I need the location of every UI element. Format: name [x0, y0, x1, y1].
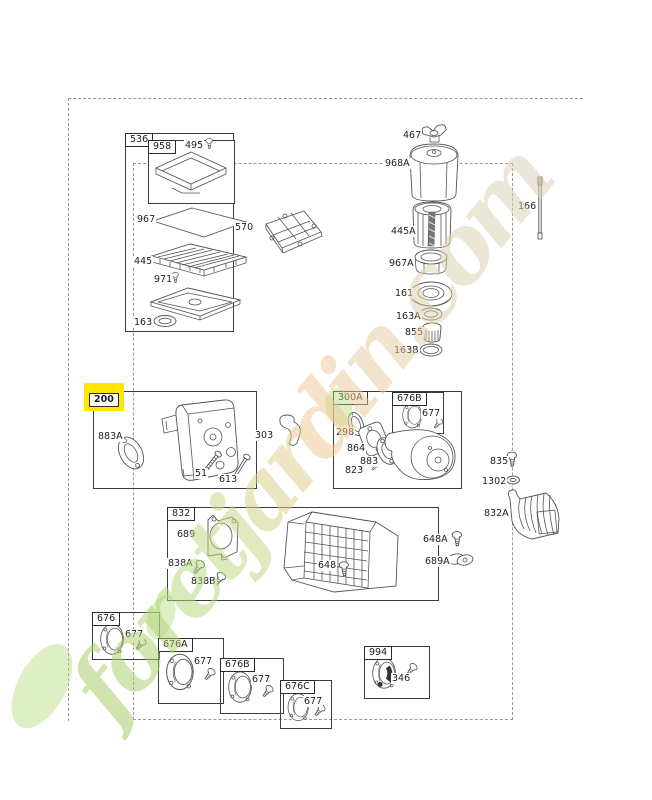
ref-648[interactable]: 648 [317, 560, 337, 571]
muffler-guard-grid-drawing [248, 508, 402, 596]
ref-883A[interactable]: 883A [97, 431, 124, 442]
ref-832[interactable]: 832 [167, 507, 195, 521]
screw-648A-icon [451, 530, 465, 549]
ref-838B[interactable]: 838B [190, 576, 217, 587]
ref-967A[interactable]: 967A [388, 258, 415, 269]
ref-864[interactable]: 864 [346, 443, 366, 454]
ref-648A[interactable]: 648A [422, 534, 449, 545]
outer-dash-left-line [68, 98, 69, 721]
ref-676A[interactable]: 676A [158, 638, 193, 652]
ref-823[interactable]: 823 [344, 465, 364, 476]
ref-689[interactable]: 689 [176, 529, 196, 540]
screw-677-icon-2 [204, 668, 216, 683]
ref-51[interactable]: 51 [194, 468, 208, 479]
ref-445[interactable]: 445 [133, 256, 153, 267]
ref-677-1[interactable]: 677 [124, 629, 144, 640]
plate-676-drawing [98, 622, 128, 658]
ref-467[interactable]: 467 [402, 130, 422, 141]
ref-161[interactable]: 161 [394, 288, 414, 299]
ref-166[interactable]: 166 [517, 201, 537, 212]
ref-298[interactable]: 298 [335, 427, 355, 438]
ref-495[interactable]: 495 [184, 140, 204, 151]
ref-677-2[interactable]: 677 [193, 656, 213, 667]
ref-689A[interactable]: 689A [424, 556, 451, 567]
highlighted-ref-200[interactable]: 200 [84, 383, 124, 411]
screw-677-icon-3 [262, 685, 274, 700]
ref-445A[interactable]: 445A [390, 226, 417, 237]
parts-diagram-canvas: 536 958 495 967 445 971 163 570 467 968A… [0, 0, 652, 800]
ref-200[interactable]: 200 [89, 393, 119, 407]
ref-303[interactable]: 303 [254, 430, 274, 441]
filter-cartridge-445A-drawing [410, 200, 454, 250]
ref-613[interactable]: 613 [218, 474, 238, 485]
ref-676[interactable]: 676 [92, 612, 120, 626]
ref-968A[interactable]: 968A [384, 158, 411, 169]
screw-495-icon [205, 137, 215, 151]
ref-677-3[interactable]: 677 [251, 674, 271, 685]
gasket-163B-drawing [418, 342, 444, 358]
air-cleaner-cover-968A-drawing [407, 142, 461, 204]
ref-832A[interactable]: 832A [483, 508, 510, 519]
heat-shield-832A-drawing [502, 485, 562, 541]
elbow-303-drawing [276, 414, 304, 448]
washer-1302-icon [506, 475, 520, 485]
ref-676B-inner[interactable]: 676B [392, 392, 427, 406]
ref-163[interactable]: 163 [133, 317, 153, 328]
watermark-leaf-blob-1 [0, 634, 85, 738]
ref-163B[interactable]: 163B [393, 345, 420, 356]
ref-967[interactable]: 967 [136, 214, 156, 225]
ref-838A[interactable]: 838A [167, 558, 194, 569]
ref-676B-bottom[interactable]: 676B [220, 658, 255, 672]
air-cleaner-cover-drawing [152, 150, 230, 200]
ref-677-inner[interactable]: 677 [421, 408, 441, 419]
ref-163A[interactable]: 163A [395, 311, 422, 322]
clamp-689A-drawing [447, 551, 475, 567]
ref-994[interactable]: 994 [364, 646, 392, 660]
ref-855[interactable]: 855 [404, 327, 424, 338]
ref-676C[interactable]: 676C [280, 680, 315, 694]
ref-570[interactable]: 570 [234, 222, 254, 233]
ref-346[interactable]: 346 [391, 673, 411, 684]
ref-835[interactable]: 835 [489, 456, 509, 467]
screw-838A-icon [192, 560, 206, 577]
retainer-967A-drawing [412, 248, 450, 276]
grate-570-drawing [252, 208, 324, 256]
bracket-689-drawing [194, 512, 252, 562]
screw-648-icon [338, 561, 352, 578]
screw-677-inner-icon [433, 418, 444, 431]
gasket-163A-drawing [418, 306, 444, 322]
ref-958[interactable]: 958 [148, 140, 176, 154]
screw-677-icon-1 [135, 638, 147, 653]
ref-677-4[interactable]: 677 [303, 696, 323, 707]
ref-971[interactable]: 971 [153, 274, 173, 285]
base-161-drawing [408, 280, 454, 308]
outer-dash-top-line [68, 98, 583, 99]
ref-1302[interactable]: 1302 [481, 476, 507, 487]
gasket-163-drawing [152, 314, 178, 328]
